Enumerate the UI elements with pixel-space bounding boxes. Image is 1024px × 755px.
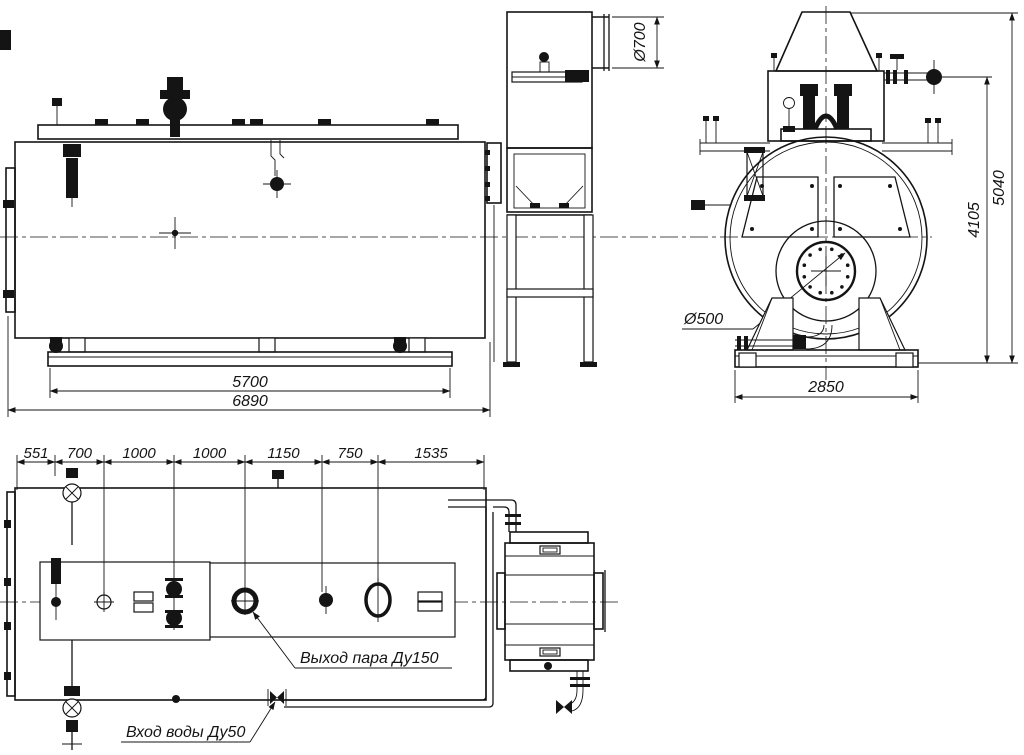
steam-valve-line xyxy=(884,54,992,94)
boiler-shell-side xyxy=(15,142,485,338)
support-legs xyxy=(69,338,425,352)
dim-chain-551: 551 xyxy=(23,445,48,462)
bottom-edge-dot xyxy=(172,695,180,703)
plan-top-fitting xyxy=(272,470,284,488)
valve-top-plan xyxy=(166,581,182,597)
plan-view: 551 700 1000 1000 1150 750 1535 Выход па… xyxy=(4,445,605,750)
hatch-box xyxy=(134,592,153,601)
top-platform xyxy=(38,125,458,139)
dim-overall-length-text: 6890 xyxy=(232,393,268,410)
skid-base xyxy=(48,352,452,366)
dim-duct-diameter: Ø700 xyxy=(612,17,664,68)
level-gauge xyxy=(63,144,81,207)
dim-chain-1000b: 1000 xyxy=(193,445,227,462)
dim-chain-1535: 1535 xyxy=(414,445,448,462)
dim-chain-700: 700 xyxy=(67,445,93,462)
dim-base-width-text: 2850 xyxy=(807,379,844,396)
economizer-plan xyxy=(497,532,605,671)
shell-center-mark xyxy=(159,217,191,249)
flue-hopper xyxy=(507,148,592,212)
pressure-gauge xyxy=(783,98,795,133)
economizer-drain xyxy=(556,671,590,714)
outlet-duct xyxy=(592,14,609,71)
riser-pipe-valve xyxy=(263,140,291,198)
dim-chain-1000a: 1000 xyxy=(122,445,156,462)
dim-skid-length-text: 5700 xyxy=(232,374,268,391)
plan-top-valve xyxy=(63,468,81,545)
water-inlet-valve xyxy=(268,689,286,706)
hatch-box-2 xyxy=(418,592,442,601)
exhaust-hood xyxy=(776,12,877,71)
dim-chain-750: 750 xyxy=(337,445,363,462)
side-elevation-view: 5700 6890 xyxy=(3,77,501,417)
damper xyxy=(512,52,589,82)
flue-stack-view: Ø700 xyxy=(494,12,664,367)
label-water-inlet: Вход воды Ду50 xyxy=(121,702,275,742)
dim-chain-1150: 1150 xyxy=(267,445,300,462)
blowdown-valves xyxy=(49,337,407,353)
dim-duct-diameter-text: Ø700 xyxy=(632,22,649,62)
label-burner-opening-text: Ø500 xyxy=(683,311,723,328)
plan-platform-left xyxy=(40,562,210,640)
plan-bottom-valve xyxy=(62,640,82,750)
front-elevation-view: Ø500 2850 xyxy=(682,6,1018,403)
drawing-canvas: 5700 6890 xyxy=(0,0,1024,755)
dim-height-to-valve: 4105 xyxy=(966,77,987,363)
label-water-inlet-text: Вход воды Ду50 xyxy=(126,724,245,741)
label-steam-outlet-text: Выход пара Ду150 xyxy=(300,650,439,667)
stack-stand xyxy=(494,205,597,367)
base-beam-front xyxy=(735,350,918,367)
valve-bottom-plan xyxy=(166,610,182,626)
sheet-corner-mark xyxy=(0,30,11,50)
nozzle-dot xyxy=(51,597,61,607)
vent-pin xyxy=(52,98,62,106)
dim-base-width: 2850 xyxy=(735,370,918,403)
dim-overall-height-text: 5040 xyxy=(991,170,1008,206)
platform-fittings xyxy=(95,119,439,125)
drawing-sheet: 5700 6890 xyxy=(0,0,1024,755)
drain-stub xyxy=(691,200,730,210)
dim-height-to-valve-text: 4105 xyxy=(966,202,983,238)
